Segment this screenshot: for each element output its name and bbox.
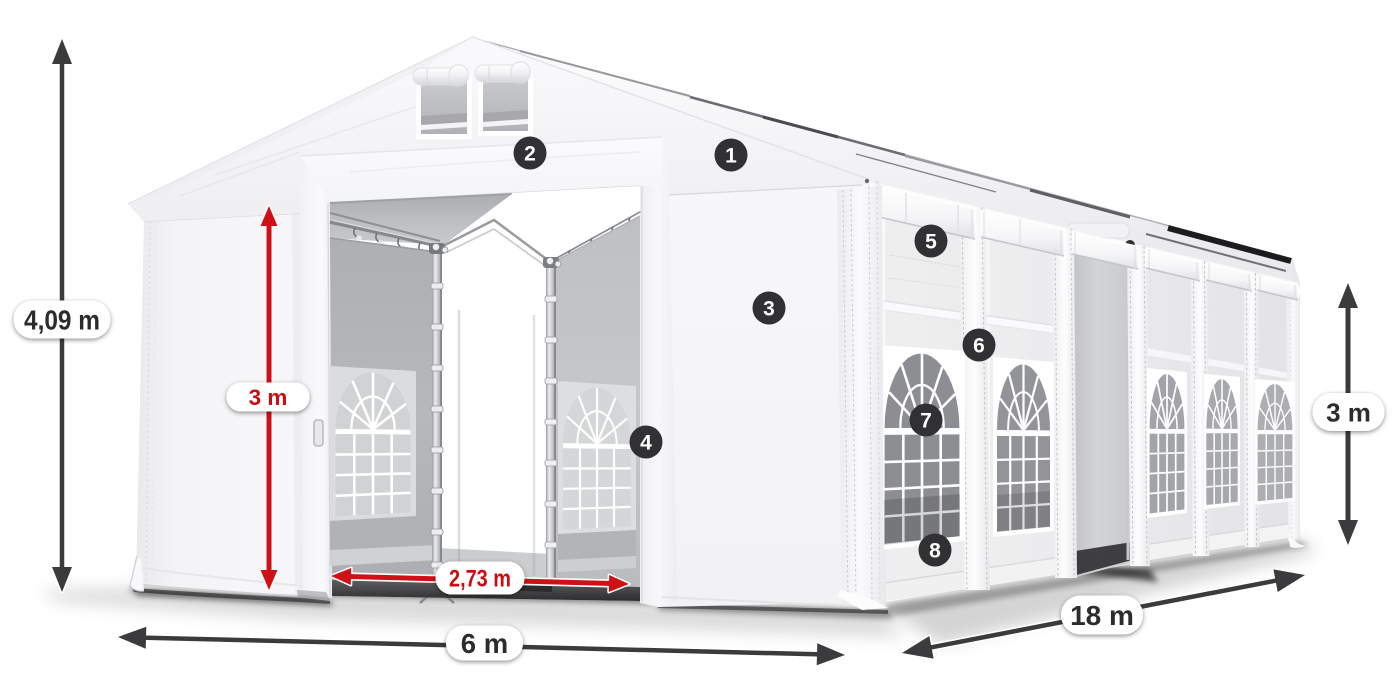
svg-text:8: 8	[929, 540, 941, 563]
svg-text:4,09 m: 4,09 m	[24, 305, 100, 336]
svg-text:1: 1	[725, 145, 737, 168]
svg-text:3: 3	[763, 298, 775, 321]
svg-text:4: 4	[640, 432, 652, 455]
svg-text:2,73 m: 2,73 m	[449, 566, 511, 593]
svg-text:3 m: 3 m	[1326, 397, 1371, 427]
svg-text:6: 6	[973, 335, 985, 358]
svg-text:5: 5	[925, 231, 937, 254]
svg-text:3 m: 3 m	[249, 385, 288, 410]
svg-text:18 m: 18 m	[1070, 600, 1134, 631]
svg-text:7: 7	[920, 410, 932, 433]
svg-text:2: 2	[524, 143, 536, 166]
svg-text:6 m: 6 m	[461, 628, 508, 659]
